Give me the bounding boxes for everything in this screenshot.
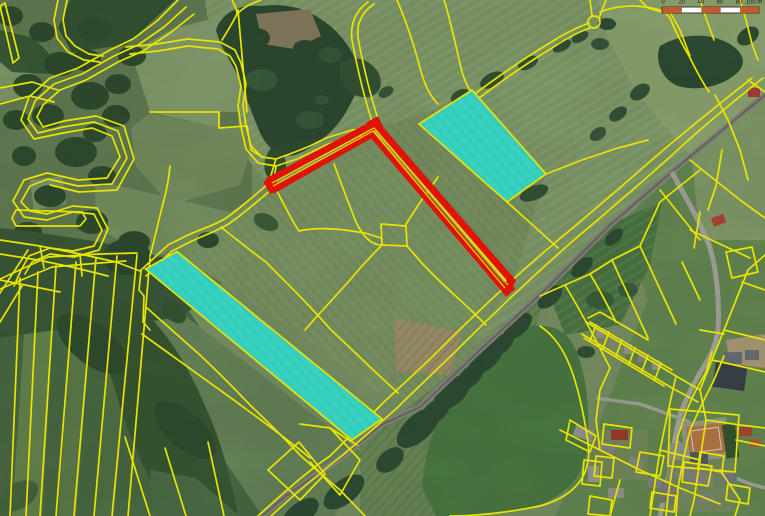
svg-text:80: 80 [736,0,743,6]
svg-text:100 m: 100 m [746,0,763,6]
svg-text:20: 20 [679,0,686,6]
svg-text:40: 40 [698,0,705,6]
svg-text:60: 60 [717,0,724,6]
